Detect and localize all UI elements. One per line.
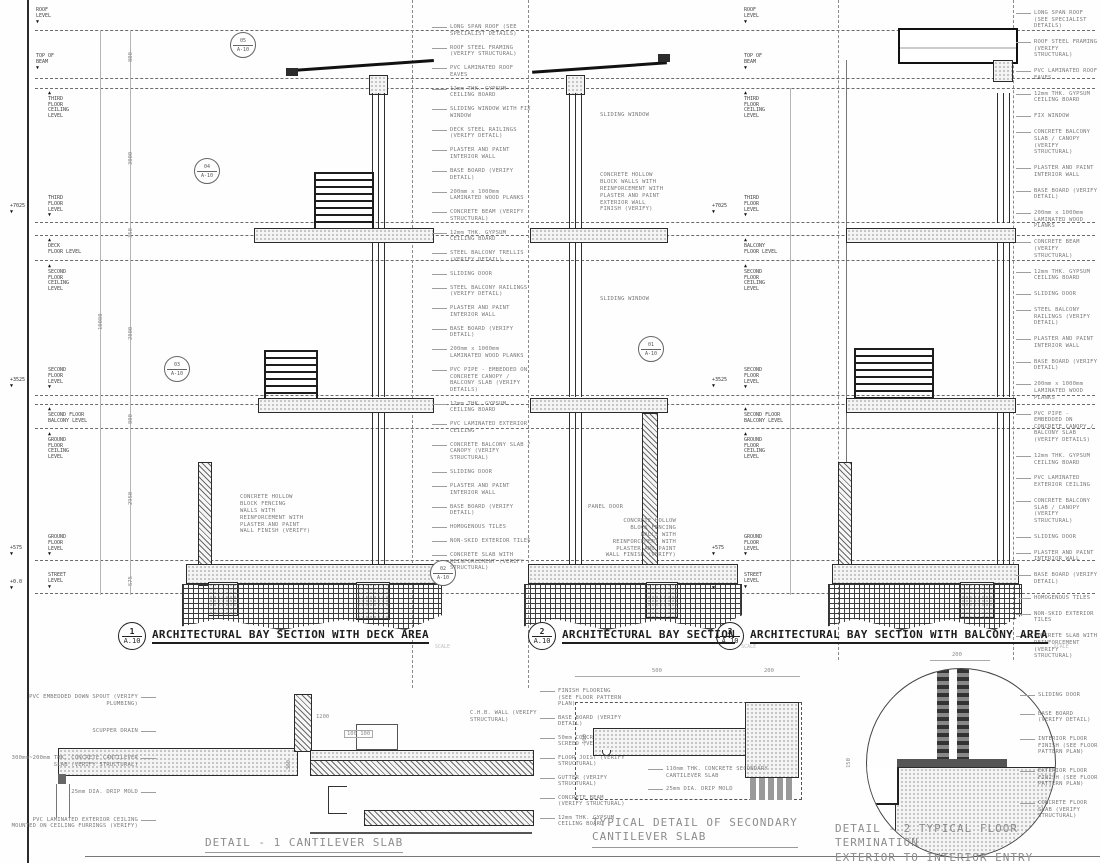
level-label: GROUND FLOOR LEVEL▼ [48,535,104,558]
floor-slab [530,398,668,413]
leader-line [1016,272,1031,273]
leader-line [432,171,447,172]
leader-line [1016,537,1031,538]
dim-label: 500 [652,668,662,674]
leader-line [432,527,447,528]
leader-line [1016,310,1031,311]
leader-line [1016,501,1031,502]
deck-slab [254,228,434,243]
roof-eave [286,68,298,76]
leader-line [540,691,555,692]
leader-line [432,233,447,234]
annotation: PLASTER AND PAINT INTERIOR WALL [432,483,532,496]
annotation: HOMOGENOUS TILES [432,524,532,531]
sliding-door [372,413,385,565]
leader-line [1016,614,1031,615]
annotation: LONG SPAN ROOF (SEE SPECIALIST DETAILS) [1016,10,1100,30]
level-line-gf [35,560,1095,561]
annotation: CONCRETE BEAM (VERIFY STRUCTURAL) [432,209,532,222]
annotation: PLASTER AND PAINT INTERIOR WALL [432,147,532,160]
annotation: BASE BOARD (VERIFY DETAIL) [1016,188,1100,201]
ground-slab [528,564,738,584]
annotation: BASE BOARD (VERIFY DETAIL) [1016,572,1100,585]
level-label: ▲SECOND FLOOR CEILING LEVEL [48,264,104,293]
floor-slab [530,228,668,243]
annotation: PVC EMBEDDED DOWN SPOUT (VERIFY PLUMBING… [6,694,156,707]
annotation: FIX WINDOW [1016,113,1100,120]
leader-line [432,212,447,213]
annotation: PLASTER AND PAINT INTERIOR WALL [1016,165,1100,178]
dim-label: 800 [128,414,134,424]
sec2-window-upper-label: SLIDING WINDOW [600,112,649,119]
leader-line [1016,553,1031,554]
title-bubble: 3A.10 [716,622,744,650]
level-line-gf-ceiling [35,428,1095,429]
dim-line [790,88,791,595]
deck-railing [314,172,374,229]
annotation: PVC LAMINATED EXTERIOR CEILING [432,421,532,434]
annotation: PVC PIPE - EMBEDDED ON CONCRETE CANOPY /… [1016,411,1100,444]
leader-line [1016,384,1031,385]
dim-line [575,676,800,677]
exterior-step [867,767,899,805]
dim-label: 150 [846,758,852,768]
architectural-sheet: ROOF LEVEL▼ TOP OF BEAM▼ ▲THIRD FLOOR CE… [0,0,1100,863]
detail-callout: 04A-10 [194,158,220,184]
annotation: ROOF STEEL FRAMING (VERIFY STRUCTURAL) [432,45,532,58]
leader-line [432,349,447,350]
level-label: SECOND FLOOR LEVEL▼ [48,368,104,391]
dim-label: 100 [582,734,588,744]
annotation: LONG SPAN ROOF (SEE SPECIALIST DETAILS) [432,24,532,37]
secondary-cantilever-slab [593,728,747,756]
dim-label: 300 [286,760,292,770]
leader-line [141,820,156,821]
leader-line [1016,116,1031,117]
title-bubble: 2A.10 [528,622,556,650]
sliding-door [372,243,385,397]
sliding-door [997,243,1010,397]
level-label: STREET LEVEL▼ [48,573,104,590]
leader-line [1016,456,1031,457]
dim-label: 200 [952,652,962,658]
level-label: ▲THIRD FLOOR CEILING LEVEL [48,91,104,120]
annotation: CONCRETE BALCONY SLAB / CANOPY (VERIFY S… [1016,129,1100,155]
annotation: STEEL BALCONY RAILINGS (VERIFY DETAIL) [1016,307,1100,327]
leader-line [432,253,447,254]
sec2-wall-note: CONCRETE HOLLOW BLOCK WALLS WITH REINFOR… [600,172,680,213]
annotation: 200mm x 1000mm LAMINATED WOOD PLANKS [432,189,532,202]
annotation: SCUPPER DRAIN [6,728,156,735]
leader-line [1016,132,1031,133]
annotation: 110mm THK. CONCRETE SECONDARY CANTILEVER… [648,766,778,779]
level-line-3f [35,222,1095,223]
leader-line [1020,739,1035,740]
sliding-window [569,93,582,229]
level-label: ▲SECOND FLOOR CEILING LEVEL [744,264,800,293]
leader-line [432,27,447,28]
annotation: SLIDING DOOR [1016,534,1100,541]
annotation: DECK STEEL RAILINGS (VERIFY DETAIL) [432,127,532,140]
annotation: BASE BOARD (VERIFY DETAIL) [432,326,532,339]
annotation: 12mm THK. GYPSUM CEILING BOARD [432,401,532,414]
dim-line [930,660,990,661]
leader-line [432,555,447,556]
right-annotations: LONG SPAN ROOF (SEE SPECIALIST DETAILS)R… [1016,10,1100,660]
level-label: ROOF LEVEL▼ [36,8,92,25]
leader-line [1016,213,1031,214]
level-line-top-of-beam [35,78,1095,79]
level-label: SECOND FLOOR LEVEL▼ [744,368,800,391]
beam-hatch [364,810,534,826]
dim-label: 1200 [316,714,329,720]
concrete-beam [369,75,388,95]
leader-line [141,758,156,759]
level-label: ▲GROUND FLOOR CEILING LEVEL [744,432,800,461]
leader-line [432,308,447,309]
leader-line [432,424,447,425]
annotation: SLIDING DOOR [1016,291,1100,298]
leader-line [141,697,156,698]
leader-line [141,792,156,793]
level-label: ▲SECOND FLOOR BALCONY LEVEL [48,407,104,424]
leader-line [432,370,447,371]
sec2-window-lower-label: SLIDING WINDOW [600,296,649,303]
sliding-door [997,413,1010,565]
sec1-body-note: CONCRETE HOLLOW BLOCK FENCING WALLS WITH… [240,494,330,535]
floor-slab-hatch [310,760,534,776]
leader-line [432,89,447,90]
leader-line [1016,478,1031,479]
chb-wall-label: C.H.B. WALL (VERIFY STRUCTURAL) [470,710,540,724]
leader-line [432,288,447,289]
leader-line [432,274,447,275]
level-label: THIRD FLOOR LEVEL▼ [744,196,800,219]
balcony-slab [258,398,434,413]
leader-line [1020,803,1035,804]
leader-line [432,541,447,542]
detail-callout: 05A-10 [230,32,256,58]
ground-slab [832,564,1019,584]
center-annotations: LONG SPAN ROOF (SEE SPECIALIST DETAILS)R… [432,24,532,572]
annotation: BASE BOARD (VERIFY DETAIL) [1020,711,1100,724]
level-label: THIRD FLOOR LEVEL▼ [48,196,104,219]
leader-line [432,329,447,330]
annotation: NON-SKID EXTERIOR TILES [432,538,532,545]
detail1-title: DETAIL - 1 CANTILEVER SLAB [205,836,403,853]
leader-line [1016,362,1031,363]
dim-label: 3000 [128,152,134,165]
balcony-railing [264,350,318,398]
annotation: CONCRETE SLAB WITH REINFORCEMENT (VERIFY… [432,552,532,572]
annotation: CONCRETE BALCONY SLAB / CANOPY (VERIFY S… [432,442,532,462]
leader-line [1016,13,1031,14]
leader-line [432,507,447,508]
leader-line [432,192,447,193]
threshold [897,759,1007,767]
annotation: BASE BOARD (VERIFY DETAIL) [432,168,532,181]
annotation: BASE BOARD (VERIFY DETAIL) [432,504,532,517]
balcony-railing [854,348,934,398]
long-span-roof [898,28,1018,64]
annotation: EXTERIOR FLOOR FINISH (SEE FLOOR PATTERN… [1020,768,1100,788]
annotation: SLIDING DOOR [432,271,532,278]
dim-label: 350 [128,228,134,238]
leader-line [432,48,447,49]
level-label: TOP OF BEAM▼ [36,54,92,71]
detail1-left-annotations: PVC EMBEDDED DOWN SPOUT (VERIFY PLUMBING… [6,694,156,830]
leader-line [1020,771,1035,772]
sliding-window [569,243,582,397]
dim-label: 575 [128,576,134,586]
balcony-slab [846,398,1016,413]
annotation: 12mm THK. GYPSUM CEILING BOARD [432,230,532,243]
level-label: ▲GROUND FLOOR CEILING LEVEL [48,432,104,461]
annotation: BASE BOARD (VERIFY DETAIL) [1016,359,1100,372]
leader-line [540,738,555,739]
level-label: GROUND FLOOR LEVEL▼ [744,535,800,558]
annotation: PVC LAMINATED EXTERIOR CEILING [1016,475,1100,488]
dim-label: 2950 [128,492,134,505]
annotation: PVC LAMINATED ROOF EAVES [432,65,532,78]
leader-line [1016,191,1031,192]
detail2-annotations: SLIDING DOORBASE BOARD (VERIFY DETAIL)IN… [1020,692,1100,820]
leader-line [1016,42,1031,43]
leader-line [432,150,447,151]
level-label: TOP OF BEAM▼ [744,54,800,71]
floor-slab [846,228,1016,243]
sec2-body-note: CONCRETE HOLLOW BLOCK FENCING WALLS WITH… [596,518,676,559]
annotation: PVC LAMINATED ROOF EAVES [1016,68,1100,81]
leader-line [432,486,447,487]
leader-line [1020,695,1035,696]
annotation: HOMOGENOUS TILES [1016,595,1100,602]
annotation: PLASTER AND PAINT INTERIOR WALL [432,305,532,318]
detail-callout: 03A-10 [164,356,190,382]
concrete-beam [566,75,585,95]
leader-line [540,778,555,779]
level-label: ▲DECK FLOOR LEVEL [48,238,104,255]
dim-label: 2800 [128,327,134,340]
leader-line [648,769,663,770]
annotation: SLIDING DOOR [432,469,532,476]
level-line-2f [35,395,1095,396]
door-jamb [957,669,969,761]
annotation: 25mm DIA. DRIP MOLD [648,786,758,793]
section3-title: 3A.10 ARCHITECTURAL BAY SECTION WITH BAL… [716,622,1069,650]
leader-line [648,789,663,790]
ground-slab [186,564,438,584]
annotation: ROOF STEEL FRAMING (VERIFY STRUCTURAL) [1016,39,1100,59]
level-label: ROOF LEVEL▼ [744,8,800,25]
detail-callout: 01A-10 [638,336,664,362]
leader-line [141,731,156,732]
annotation: PLASTER AND PAINT INTERIOR WALL [1016,336,1100,349]
leader-line [1016,339,1031,340]
door-jamb [937,669,949,761]
title-bubble: 1A.10 [118,622,146,650]
gypsum-board-line [310,832,532,834]
leader-line [432,472,447,473]
leader-line [1016,414,1031,415]
leader-line [1016,598,1031,599]
annotation: 200mm x 1000mm LAMINATED WOOD PLANKS [1016,381,1100,401]
annotation: PVC PIPE - EMBEDDED ON CONCRETE CANOPY /… [432,367,532,393]
annotation: 25mm DIA. DRIP MOLD [6,789,156,796]
annotation: SLIDING WINDOW WITH FIX WINDOW [432,106,532,119]
leader-line [432,68,447,69]
annotation: STEEL BALCONY TRELLIS (VERIFY DETAIL) [432,250,532,263]
leader-line [1016,575,1031,576]
dim-label: 100 100 [344,730,373,738]
annotation: CONCRETE BEAM (VERIFY STRUCTURAL) [1016,239,1100,259]
fix-window [997,93,1010,223]
floor-joist [328,786,347,814]
annotation: 12mm THK. GYPSUM CEILING BOARD [1016,269,1100,282]
panel-door [569,413,582,565]
dim-overall-label: 10080 [98,313,104,330]
annotation: INTERIOR FLOOR FINISH (SEE FLOOR PATTERN… [1020,736,1100,756]
leader-line [540,758,555,759]
annotation: SLIDING DOOR [1020,692,1100,699]
chb-wall [294,694,312,752]
roof-eave [658,54,670,62]
roof-slope [532,61,667,73]
leader-line [1016,71,1031,72]
level-line-2f-ceiling [35,260,1095,261]
annotation: PVC LAMINATED EXTERIOR CEILING MOUNTED O… [6,817,156,830]
annotation: CONCRETE FLOOR SLAB (VERIFY STRUCTURAL) [1020,800,1100,820]
annotation: 12mm THK. GYPSUM CEILING BOARD [432,86,532,99]
annotation: 200mm x 1000mm LAMINATED WOOD PLANKS [1016,210,1100,230]
annotation: 200mm x 1000mm LAMINATED WOOD PLANKS [432,346,532,359]
leader-line [432,130,447,131]
level-line-3f-ceiling [35,88,1095,89]
dim-line [130,30,131,595]
annotation: STEEL BALCONY RAILINGS (VERIFY DETAIL) [432,285,532,298]
section-separator [1013,0,1014,660]
detail-secondary-title: TYPICAL DETAIL OF SECONDARY CANTILEVER S… [592,816,798,848]
leader-line [432,109,447,110]
concrete-beam [993,60,1013,82]
detail2-title: DETAIL - 2 TYPICAL FLOOR TERMINATION EXT… [835,822,1100,863]
level-label: STREET LEVEL▼ [744,573,800,590]
dim-label: 200 [764,668,774,674]
leader-line [1020,714,1035,715]
leader-line [1016,242,1031,243]
dim-label: 800 [128,52,134,62]
leader-line [1016,168,1031,169]
leader-line [540,718,555,719]
annotation: 12mm THK. GYPSUM CEILING BOARD [1016,91,1100,104]
level-label: ▲BALCONY FLOOR LEVEL [744,238,800,255]
level-label: ▲THIRD FLOOR CEILING LEVEL [744,91,800,120]
leader-line [432,445,447,446]
annotation: 300mm~200mm THK. CONCRETE CANTILEVER SLA… [6,755,156,768]
leader-line [432,404,447,405]
annotation: PLASTER AND PAINT INTERIOR WALL [1016,550,1100,563]
sec2-panel-door-label: PANEL DOOR [588,504,623,511]
leader-line [540,818,555,819]
section1-title: 1A.10 ARCHITECTURAL BAY SECTION WITH DEC… [118,622,450,650]
leader-line [1016,294,1031,295]
annotation: 12mm THK. GYPSUM CEILING BOARD [1016,453,1100,466]
leader-line [540,798,555,799]
annotation: CONCRETE BALCONY SLAB / CANOPY (VERIFY S… [1016,498,1100,524]
chb-wall [838,462,852,567]
level-label: ▲SECOND FLOOR BALCONY LEVEL [744,407,800,424]
leader-line [1016,94,1031,95]
